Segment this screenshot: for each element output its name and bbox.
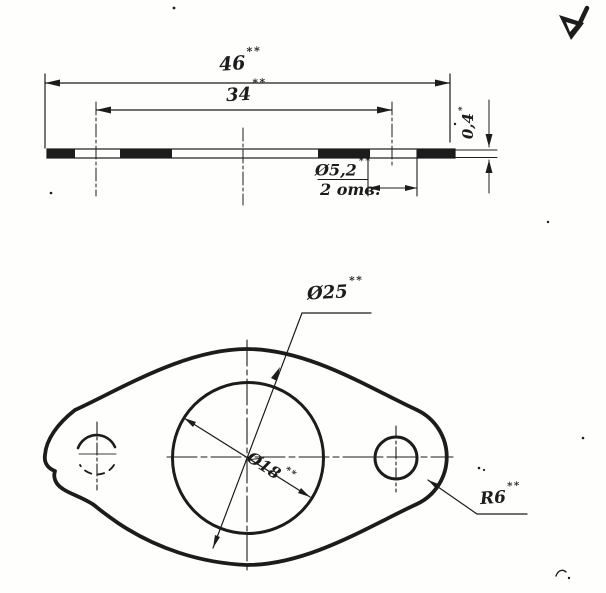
- dim-bolt-hole-value: Ø5,2: [315, 160, 357, 179]
- section-view: [45, 74, 497, 205]
- dim-outer-diameter-value: Ø25: [306, 281, 348, 304]
- gasket-drawing-canvas: 46** 34** 0,4* Ø5,2** 2 отв. Ø25** Ø18**…: [0, 0, 606, 593]
- dim-hole-spacing-label: 34**: [226, 84, 268, 105]
- dim-thickness-value: 0,4: [461, 113, 476, 139]
- dim-length-tolerance: **: [246, 43, 262, 58]
- gasket-section-bar: [47, 149, 455, 158]
- dim-bolt-hole-count: 2 отв.: [320, 180, 380, 199]
- dim-length-value: 46: [218, 52, 246, 76]
- dim-end-radius-label: R6**: [479, 487, 522, 509]
- dim-end-radius-value: R6: [479, 487, 506, 509]
- dim-bolt-hole-label: Ø5,2**: [315, 162, 372, 178]
- dim-thickness-arrows: [486, 134, 493, 173]
- surface-roughness-check-icon: [559, 8, 587, 40]
- dim-outer-diameter-label: Ø25**: [307, 282, 365, 304]
- dim-end-radius-tolerance: **: [507, 480, 521, 493]
- plan-view: [45, 313, 527, 570]
- dim-outer-diameter-tolerance: **: [349, 274, 364, 288]
- dim-hole-spacing-tolerance: **: [252, 76, 267, 90]
- dim-length-label: 46**: [218, 52, 263, 75]
- dim-bolt-hole-tolerance: **: [359, 156, 372, 167]
- dim-hole-spacing-value: 34: [225, 84, 251, 106]
- dim-thickness-label: 0,4*: [458, 94, 478, 150]
- dim-thickness-tolerance: *: [459, 105, 468, 111]
- dim-bolt-hole-count-label: 2 отв.: [320, 182, 380, 198]
